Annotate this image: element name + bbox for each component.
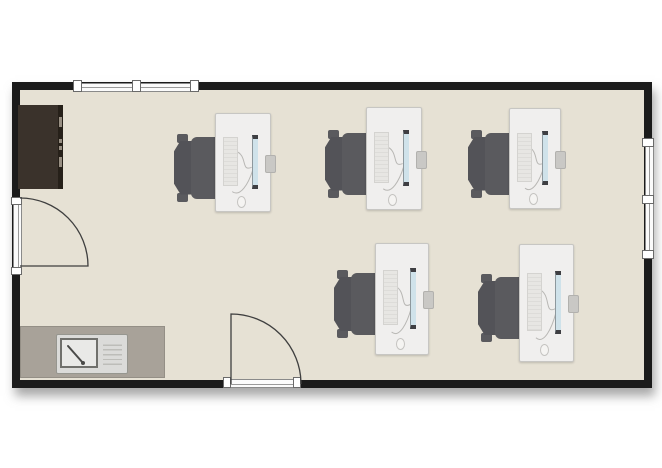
door-frame-cap [11,267,22,275]
storage-cabinet [18,105,63,189]
monitor-stand [416,151,427,169]
monitor [410,268,416,329]
window-mullion [190,80,199,92]
mouse [396,338,405,350]
mouse [237,196,246,208]
sink-drainboard [103,341,122,367]
keyboard [223,137,238,186]
door-threshold [13,197,22,275]
keyboard [374,132,389,182]
keyboard [517,133,532,183]
monitor-stand [568,295,579,313]
keyboard [527,273,542,331]
desk-surface [215,113,271,212]
monitor-stand [423,291,434,309]
door-threshold [223,379,301,388]
desk-surface [519,244,574,362]
monitor [555,271,561,335]
monitor [252,135,258,188]
monitor [542,131,548,185]
window-mullion [642,250,654,259]
floor-plan-canvas [0,0,662,468]
window-mullion [642,138,654,147]
monitor-stand [265,155,276,173]
window-mullion [132,80,141,92]
cabinet-handle [59,139,62,143]
cabinet-handle [59,117,62,127]
desk-surface [375,243,429,355]
desk-surface [509,108,561,209]
keyboard [383,270,398,325]
desk-surface [366,107,422,210]
cabinet-handle [59,146,62,150]
window-mullion [642,195,654,204]
mouse [388,194,397,206]
sink-basin [60,338,98,368]
mouse [540,344,549,356]
cabinet-handle [59,157,62,167]
door-frame-cap [223,377,231,388]
door-frame-cap [293,377,301,388]
mouse [529,193,538,205]
window-mullion [73,80,82,92]
door-frame-cap [11,197,22,205]
monitor [403,130,409,186]
kitchen-sink [56,334,128,374]
monitor-stand [555,151,566,169]
